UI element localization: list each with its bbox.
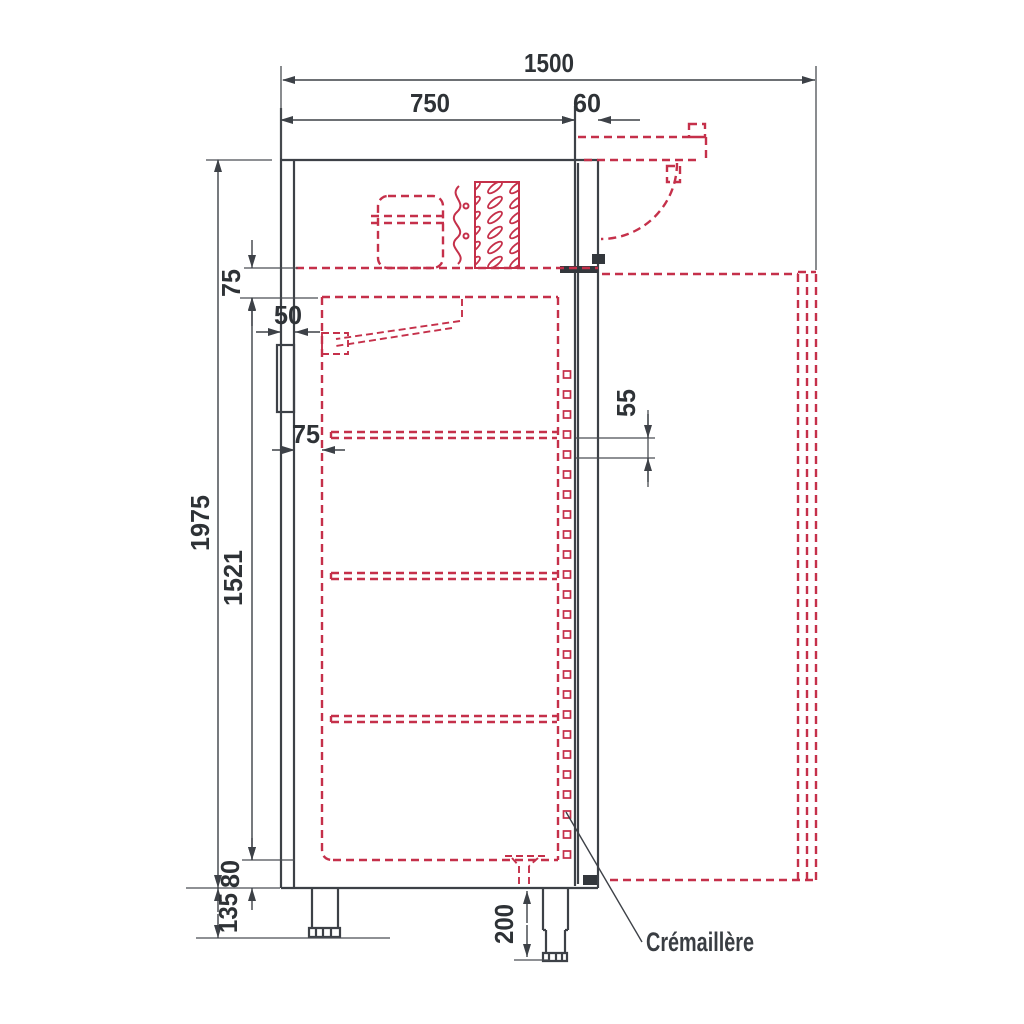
left-foot [309, 888, 340, 937]
fan-hub-bottom [464, 234, 469, 239]
dimension-leg-max: 200 [489, 891, 527, 957]
rack-label: Crémaillère [646, 927, 754, 957]
cabinet-side-section-drawing: 1500 750 60 1975 1521 75 50 75 55 8 [0, 0, 1024, 1024]
dimension-back-insulation: 75 [272, 419, 345, 450]
dim-label-750: 750 [410, 88, 450, 118]
cremaillere-rack-holes [564, 371, 571, 858]
wall-spacer-block [277, 345, 294, 412]
shelf-lines [331, 432, 557, 722]
fan-hub-top [464, 204, 469, 209]
compressor [371, 196, 449, 268]
dim-label-75-side: 75 [292, 419, 320, 449]
compressor-flange [371, 216, 449, 223]
flap-swing-arc [601, 163, 677, 239]
drain-outlet [505, 856, 545, 888]
right-foot [543, 888, 568, 961]
dim-label-55: 55 [611, 389, 641, 417]
evaporator-tray [322, 299, 462, 354]
dimension-door-thickness: 60 [562, 88, 640, 120]
technical-drawing-page: 1500 750 60 1975 1521 75 50 75 55 8 [0, 0, 1024, 1024]
dimension-top-insulation: 75 [216, 240, 252, 326]
dim-label-60: 60 [573, 88, 601, 118]
dimension-wall-spacer: 50 [256, 300, 320, 332]
dimension-interior-height: 1521 [218, 298, 252, 860]
compartment-divider [560, 266, 598, 273]
dim-label-135: 135 [213, 893, 243, 933]
cabinet-body [277, 106, 605, 961]
dim-label-80: 80 [215, 860, 245, 888]
dimension-leg-min: 135 [213, 888, 243, 938]
door-hinge-top [592, 254, 605, 264]
dimension-body-depth: 750 [281, 88, 575, 120]
dim-label-1975: 1975 [185, 495, 215, 551]
door-open-position [610, 272, 816, 880]
dim-label-1521: 1521 [218, 550, 248, 606]
door-hinge-bottom [583, 875, 597, 885]
condenser-coil [475, 182, 519, 268]
dimension-total-depth: 1500 [283, 48, 815, 80]
dim-label-75-top: 75 [216, 269, 246, 297]
compressor-shell [378, 196, 443, 268]
dimension-rack-pitch: 55 [611, 389, 648, 482]
fan-blades [454, 186, 461, 264]
dimension-overall-height: 1975 [185, 160, 218, 888]
interior-red-details [296, 124, 816, 888]
dim-label-1500: 1500 [524, 48, 574, 78]
dim-label-50: 50 [274, 300, 302, 330]
dim-label-200: 200 [489, 904, 519, 944]
